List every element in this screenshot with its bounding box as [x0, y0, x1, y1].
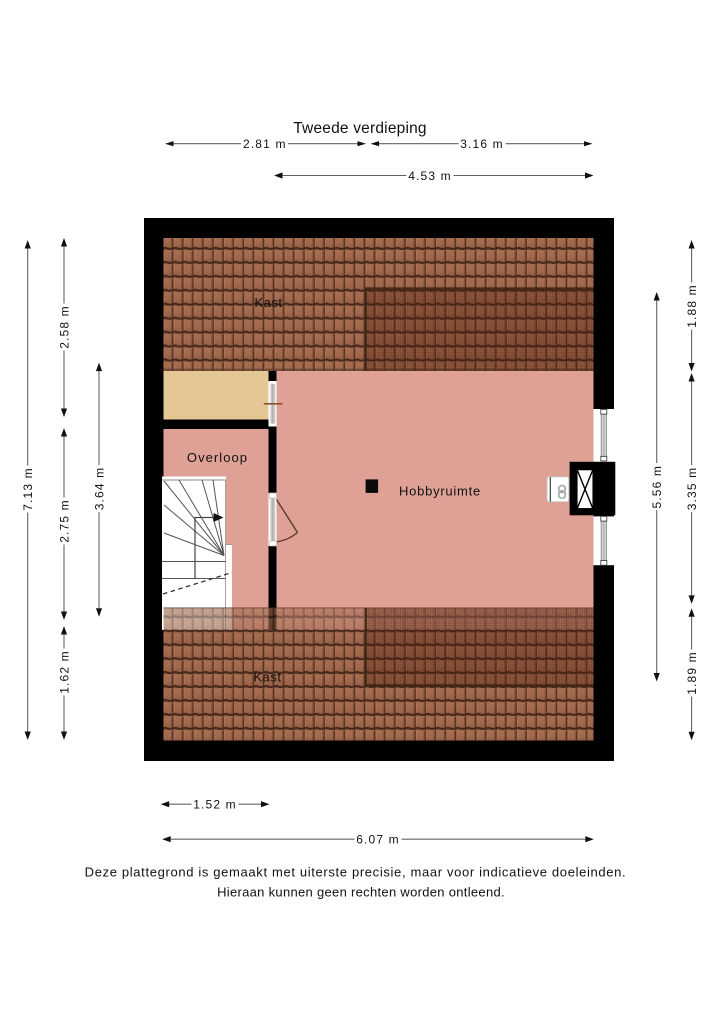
- svg-text:5.56 m: 5.56 m: [650, 465, 664, 509]
- svg-text:1.88 m: 1.88 m: [685, 284, 699, 328]
- svg-text:3.16 m: 3.16 m: [460, 137, 504, 151]
- svg-text:Deze plattegrond is gemaakt me: Deze plattegrond is gemaakt met uiterste…: [85, 865, 627, 880]
- svg-text:Hieraan kunnen geen rechten wo: Hieraan kunnen geen rechten worden ontle…: [217, 885, 505, 900]
- svg-text:Overloop: Overloop: [187, 450, 248, 465]
- svg-text:7.13 m: 7.13 m: [21, 467, 35, 511]
- svg-text:2.75 m: 2.75 m: [57, 499, 71, 543]
- svg-text:2.58 m: 2.58 m: [57, 305, 71, 349]
- svg-text:Tweede verdieping: Tweede verdieping: [293, 120, 427, 137]
- svg-text:6.07 m: 6.07 m: [356, 833, 400, 847]
- svg-text:Kast: Kast: [253, 669, 281, 684]
- svg-text:1.52 m: 1.52 m: [193, 798, 237, 812]
- svg-text:3.35 m: 3.35 m: [685, 467, 699, 511]
- svg-text:1.89 m: 1.89 m: [685, 651, 699, 695]
- svg-text:3.64 m: 3.64 m: [92, 467, 106, 511]
- svg-text:Kast: Kast: [254, 295, 282, 310]
- svg-text:2.81 m: 2.81 m: [243, 137, 287, 151]
- svg-text:Hobbyruimte: Hobbyruimte: [399, 484, 481, 499]
- svg-text:1.62 m: 1.62 m: [57, 650, 71, 694]
- svg-text:4.53 m: 4.53 m: [408, 169, 452, 183]
